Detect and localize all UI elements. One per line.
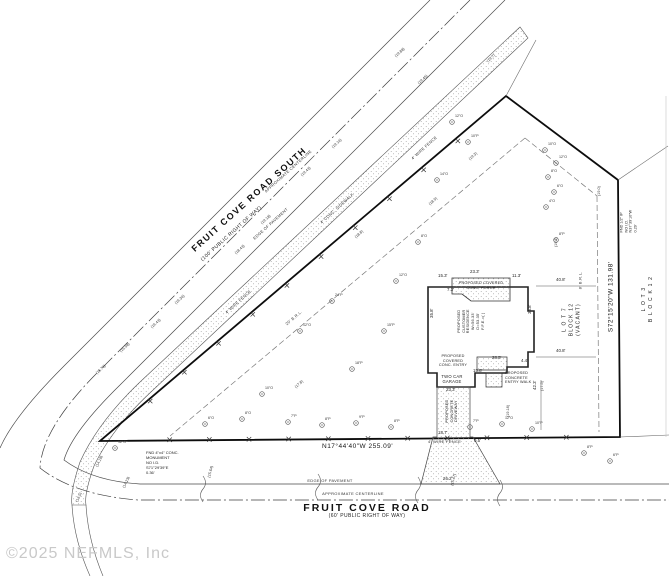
- tree-center-dot: [545, 206, 546, 207]
- station-mark: [316, 474, 321, 500]
- tree-center-dot: [395, 280, 396, 281]
- tree-center-dot: [531, 428, 532, 429]
- tree-center-dot: [114, 447, 115, 448]
- station-mark: [416, 477, 421, 503]
- tree-center-dot: [583, 452, 584, 453]
- tree-center-dot: [321, 424, 322, 425]
- tree-center-dot: [355, 422, 356, 423]
- tree-center-dot: [351, 368, 352, 369]
- entry-walk: [486, 373, 502, 387]
- tree-center-dot: [467, 141, 468, 142]
- corner-tie-northeast: [618, 146, 668, 180]
- sidewalk-curve-tail-a: [72, 505, 90, 576]
- tree-center-dot: [553, 191, 554, 192]
- tree-center-dot: [609, 460, 610, 461]
- station-mark: [201, 476, 206, 502]
- tree-center-dot: [547, 176, 548, 177]
- tree-center-dot: [436, 179, 437, 180]
- road-south-west-edge: [0, 0, 430, 448]
- tree-center-dot: [417, 241, 418, 242]
- brl-northeast-dashed: [525, 138, 597, 196]
- tree-center-dot: [390, 426, 391, 427]
- tree-center-dot: [555, 162, 556, 163]
- tree-center-dot: [331, 300, 332, 301]
- tree-center-dot: [469, 426, 470, 427]
- road-south-east-edge: [64, 0, 669, 484]
- sidewalk-curve-tail-b: [86, 505, 103, 576]
- tree-center-dot: [544, 149, 545, 150]
- site-survey-drawing: FRUIT COVE ROAD SOUTH (100' PUBLIC RIGHT…: [0, 0, 669, 576]
- tree-center-dot: [241, 418, 242, 419]
- tree-center-dot: [451, 121, 452, 122]
- brl-east-dashed: [597, 196, 599, 432]
- tree-center-dot: [261, 393, 262, 394]
- tree-center-dot: [287, 421, 288, 422]
- house-entry: [477, 357, 507, 370]
- driveway: [421, 387, 500, 484]
- tree-center-dot: [555, 239, 556, 240]
- tree-center-dot: [299, 330, 300, 331]
- survey-linework: [0, 0, 669, 576]
- tree-center-dot: [383, 330, 384, 331]
- house-footprint: [428, 287, 534, 387]
- tree-center-dot: [204, 423, 205, 424]
- tree-center-dot: [501, 423, 502, 424]
- property-boundary: [100, 96, 620, 441]
- corner-tie-southeast: [620, 435, 669, 437]
